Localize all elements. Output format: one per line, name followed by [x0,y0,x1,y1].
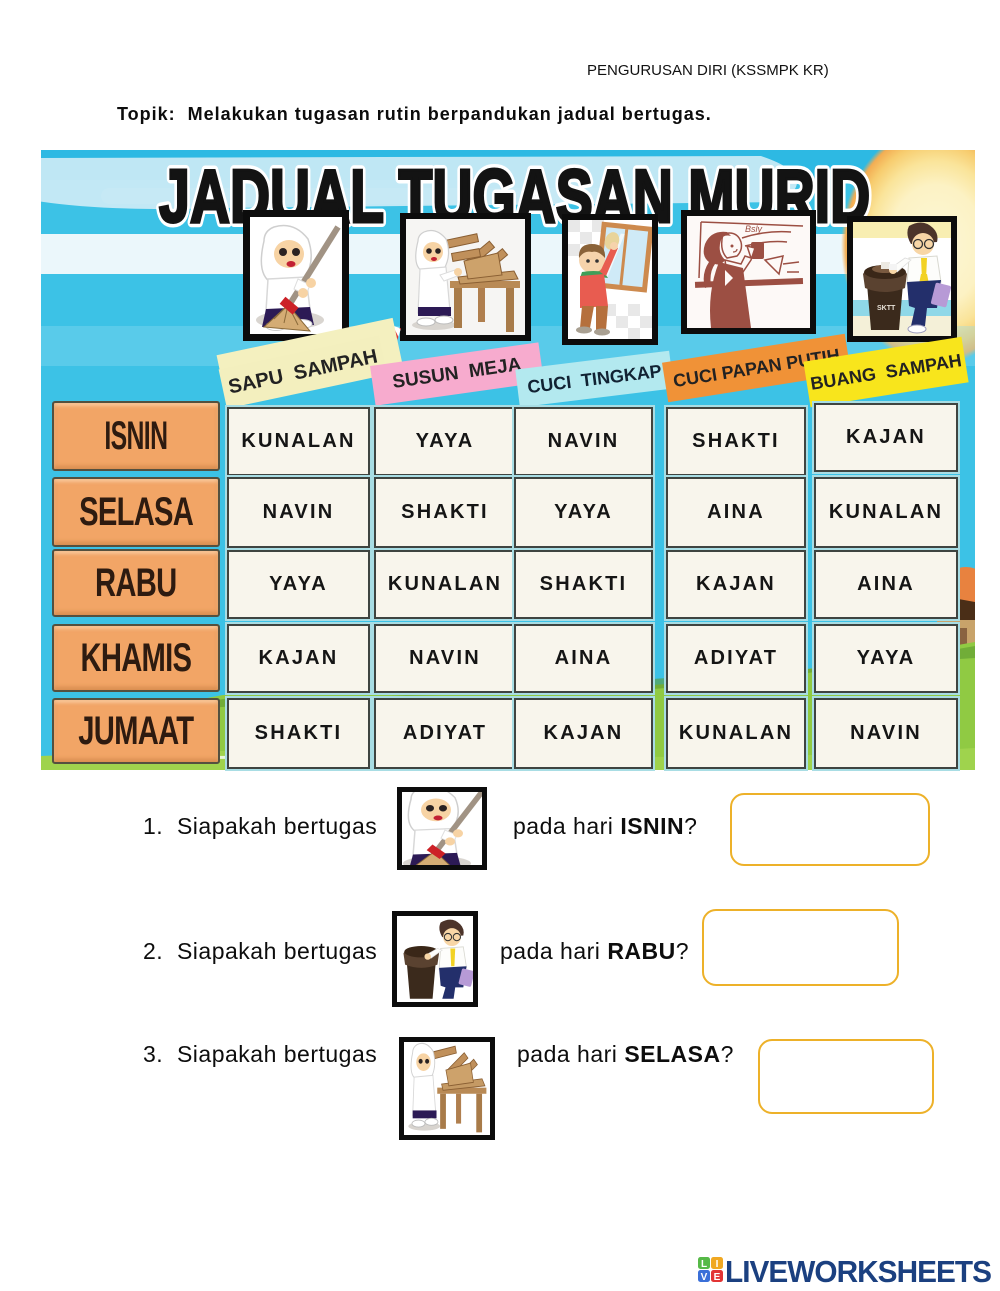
svg-text:Bsly: Bsly [745,224,763,234]
svg-text:SKTT: SKTT [877,305,896,312]
svg-text:E: E [714,1272,721,1283]
svg-text:L: L [701,1259,707,1270]
svg-text:V: V [701,1272,708,1283]
svg-text:I: I [716,1259,719,1270]
svg-text:LIVEWORKSHEETS: LIVEWORKSHEETS [725,1256,991,1286]
